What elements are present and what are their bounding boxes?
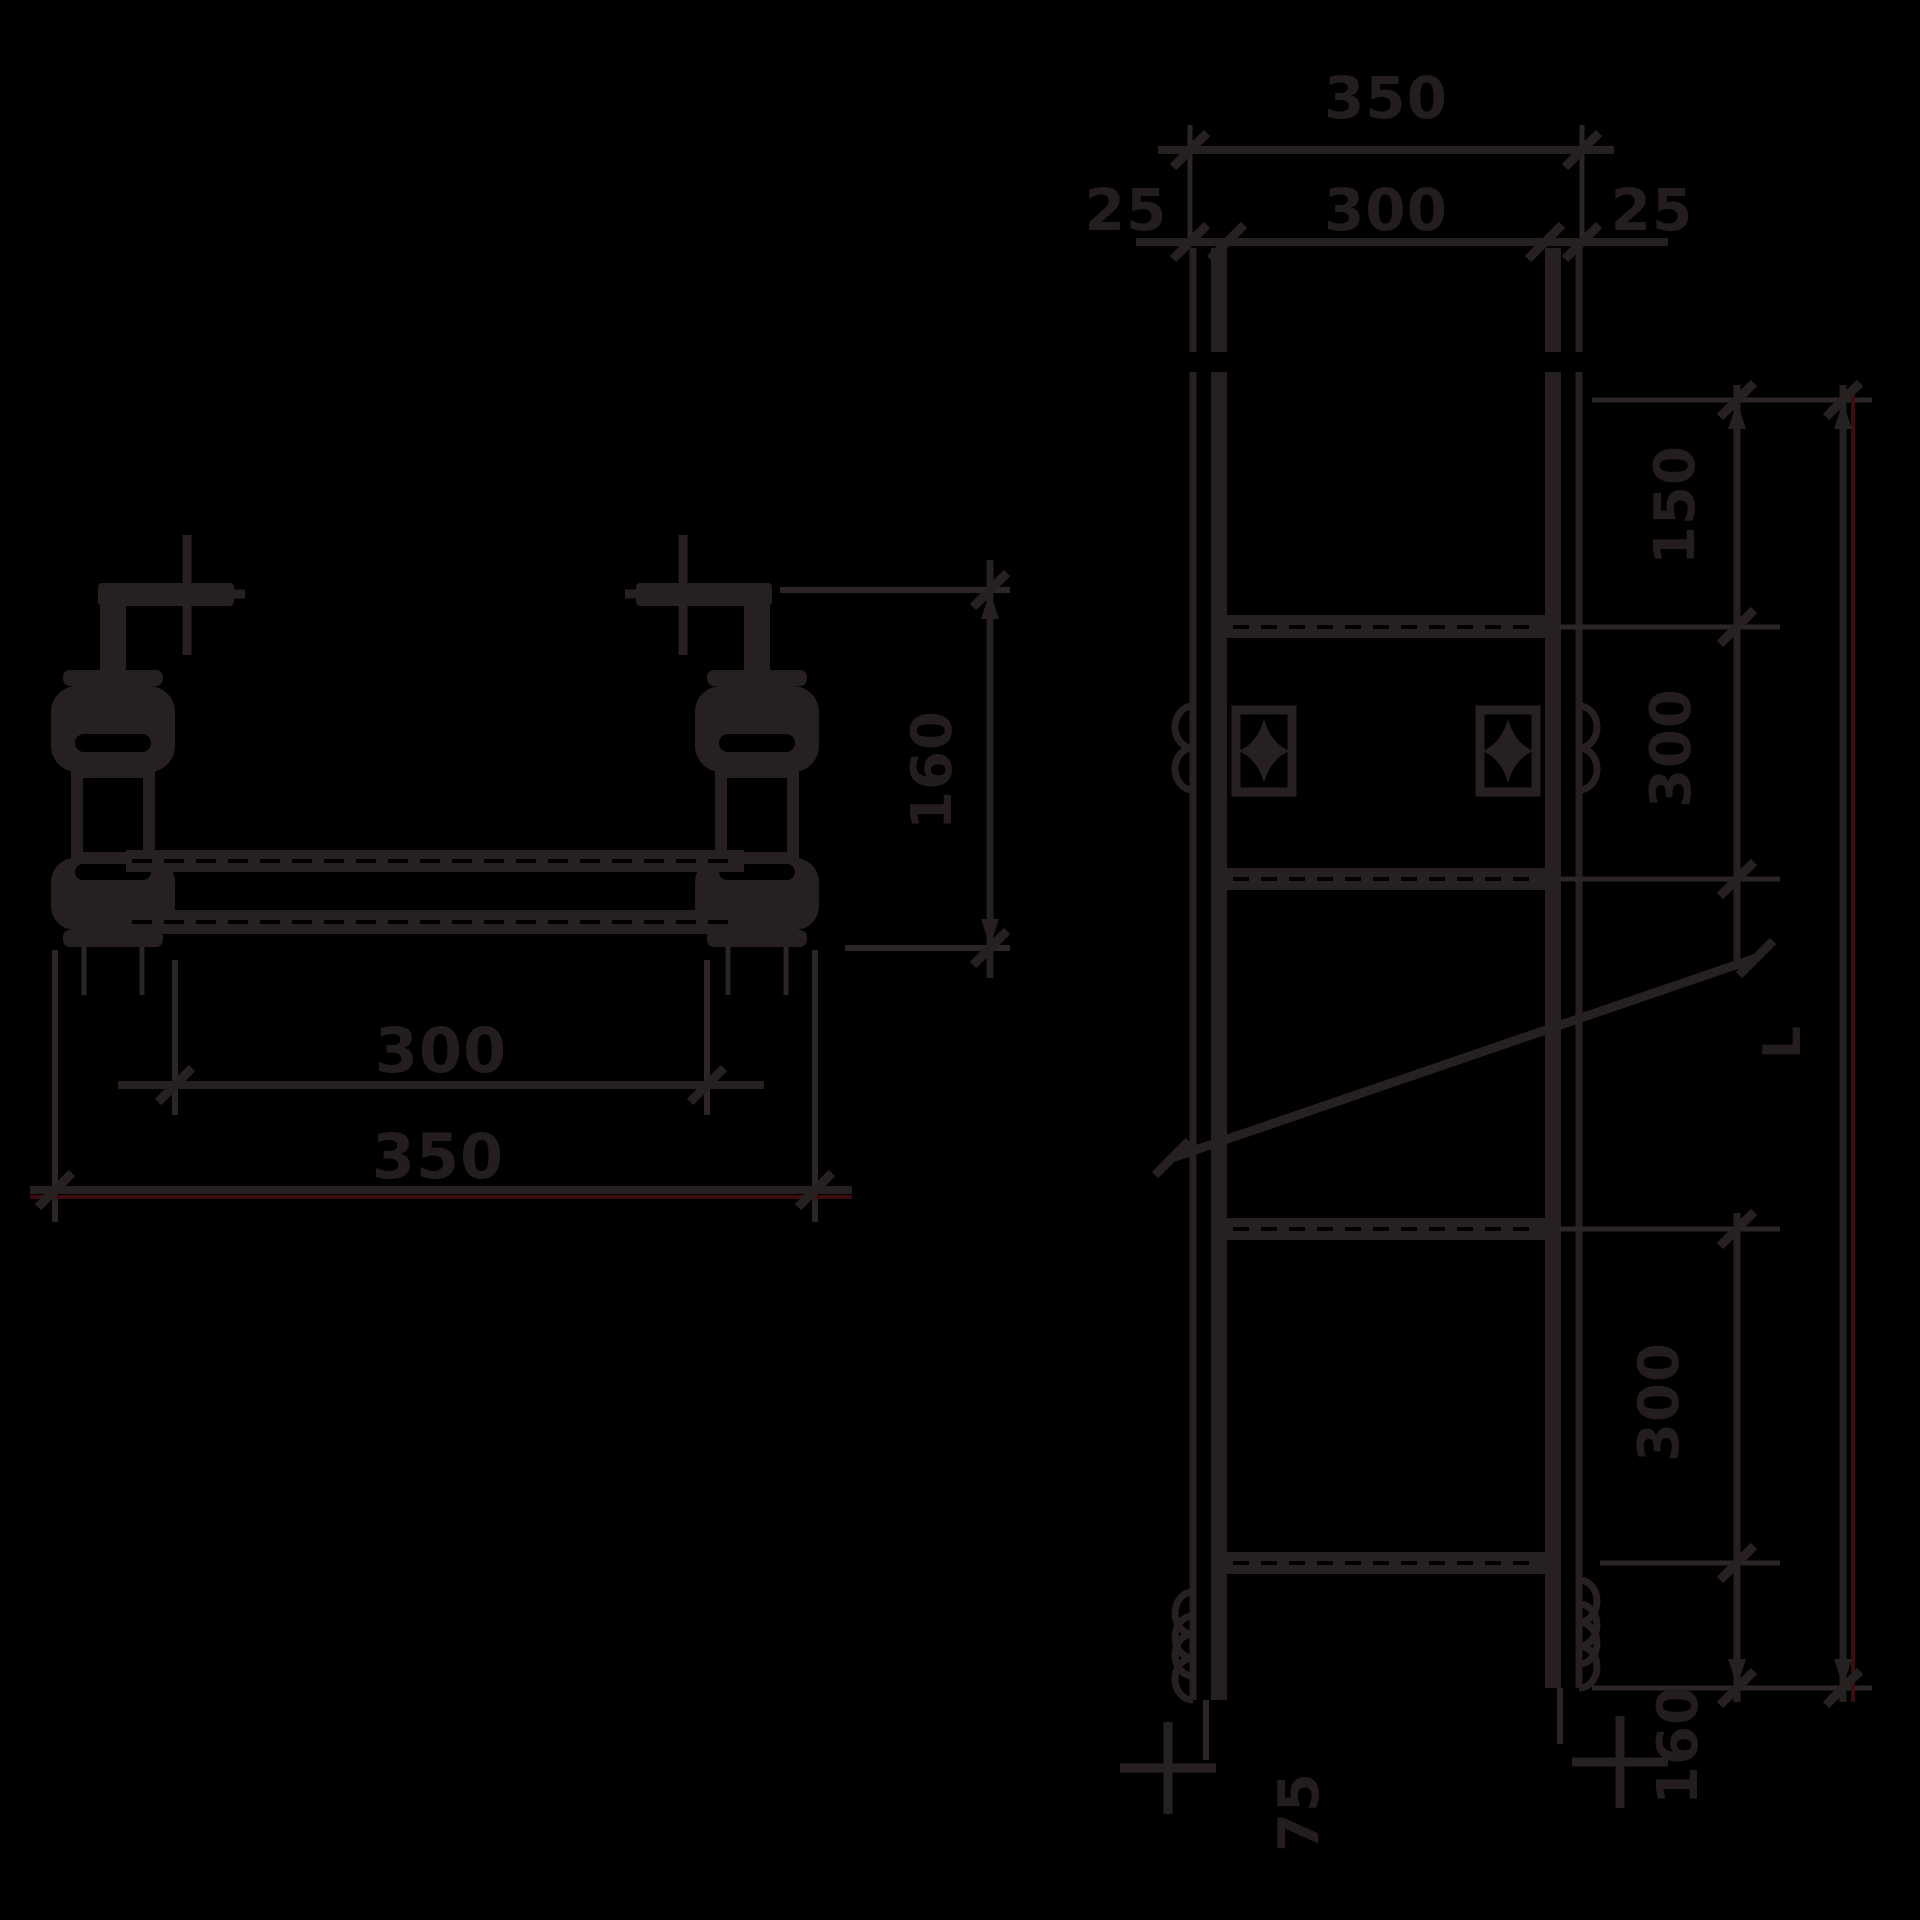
diagonal-break-line <box>1155 941 1773 1175</box>
drawing-canvas: 300 350 160 350 <box>0 0 1920 1920</box>
roller-assembly-left <box>51 670 175 995</box>
dim-label-height: 160 <box>900 710 965 830</box>
dim-label-inner-width: 300 <box>375 1014 507 1087</box>
cross-rails <box>126 850 744 934</box>
roller-assembly-right <box>695 670 819 995</box>
centerline-cross <box>129 535 245 655</box>
dim-label-flange-right: 25 <box>1611 176 1694 244</box>
dim-label-width-inner: 300 <box>1324 176 1448 244</box>
rail-left <box>1193 248 1219 1700</box>
dim-label-overall-length: L <box>1753 1025 1813 1059</box>
front-view: 300 350 160 <box>30 535 1010 1222</box>
dim-label-outer-width: 350 <box>372 1120 504 1193</box>
dim-label-width-outer: 350 <box>1324 64 1448 132</box>
rail-end-left <box>1120 1700 1216 1814</box>
dim-label-rung-spacing-upper: 300 <box>1639 688 1704 808</box>
bolt-marker-left <box>1236 710 1292 792</box>
dimension-300-25-top: 25 300 25 <box>1085 176 1694 259</box>
dim-label-flange-left: 25 <box>1085 176 1168 244</box>
bolt-marker-right <box>1480 710 1536 792</box>
dim-label-bottom-section: 160 <box>1646 1685 1711 1805</box>
dim-label-bottom-offset: 75 <box>1267 1772 1332 1852</box>
centerline-cross <box>625 535 741 655</box>
rail-right <box>1553 248 1579 1688</box>
dim-label-rung-spacing-lower: 300 <box>1627 1342 1692 1462</box>
extension-lines <box>1560 400 1872 1688</box>
side-view: 350 25 300 25 <box>1085 64 1872 1852</box>
dim-label-top-spacing: 150 <box>1643 445 1708 565</box>
dimension-chain-overall: L <box>1753 383 1860 1705</box>
technical-drawing: 300 350 160 350 <box>0 0 1920 1920</box>
dimension-300-inner: 300 <box>118 960 764 1115</box>
dimension-chain-inner: 150 300 300 160 <box>1627 383 1754 1805</box>
